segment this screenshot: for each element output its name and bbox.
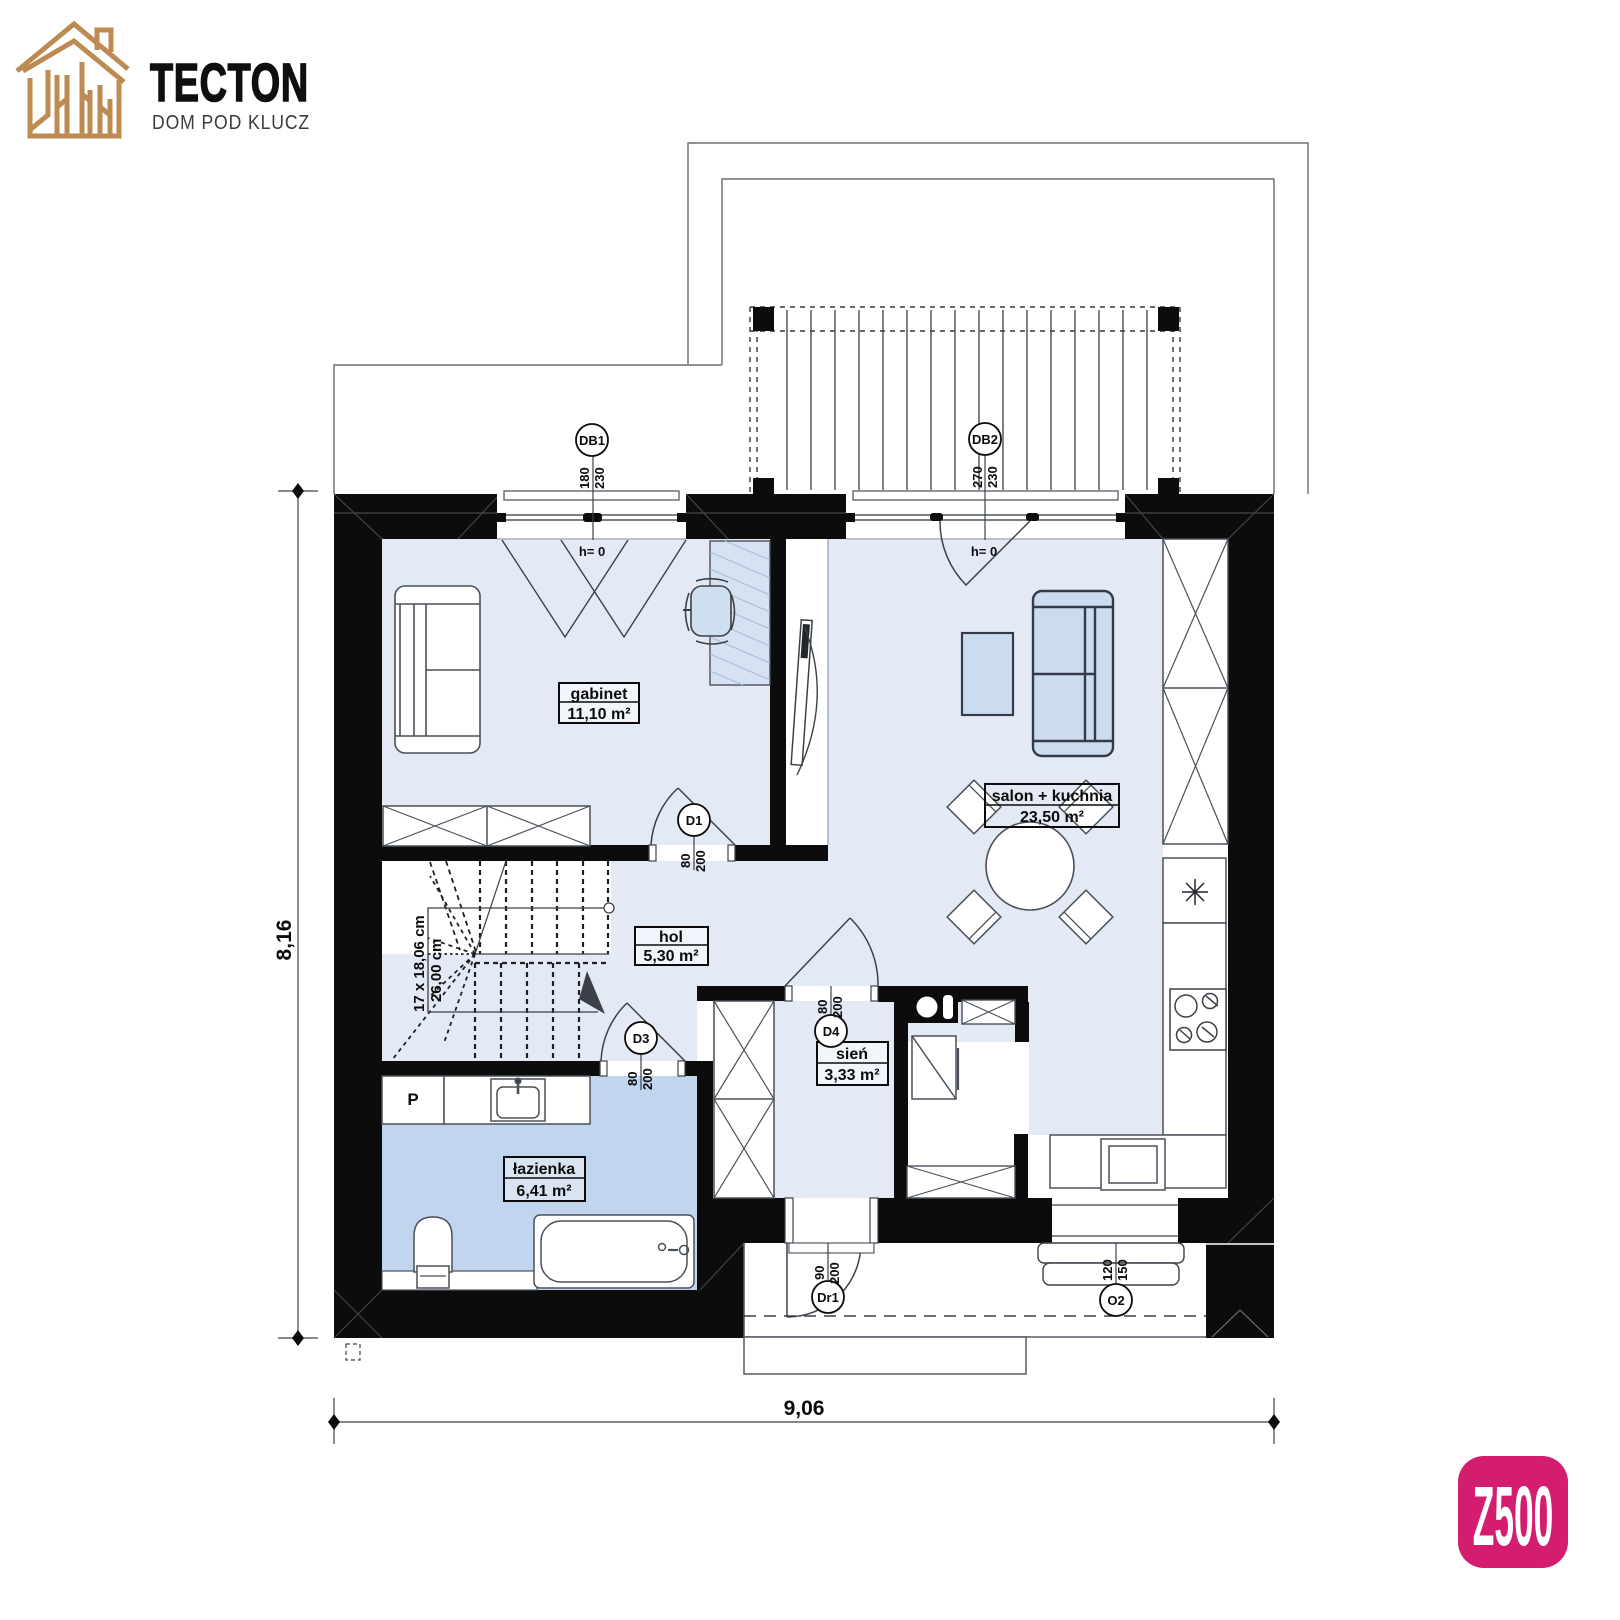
svg-text:DB1: DB1 bbox=[579, 433, 605, 448]
svg-text:Dr1: Dr1 bbox=[817, 1290, 839, 1305]
svg-text:11,10 m²: 11,10 m² bbox=[567, 706, 630, 723]
svg-text:O2: O2 bbox=[1107, 1293, 1124, 1308]
svg-text:D4: D4 bbox=[823, 1024, 840, 1039]
svg-text:90: 90 bbox=[812, 1266, 827, 1280]
svg-text:h= 0: h= 0 bbox=[971, 544, 997, 559]
svg-text:6,41 m²: 6,41 m² bbox=[516, 1183, 571, 1200]
svg-text:9,06: 9,06 bbox=[784, 1397, 825, 1420]
svg-text:salon + kuchnia: salon + kuchnia bbox=[992, 788, 1113, 805]
svg-text:80: 80 bbox=[678, 854, 693, 868]
svg-text:17 x 18,06 cm: 17 x 18,06 cm bbox=[411, 915, 428, 1012]
svg-text:180: 180 bbox=[577, 467, 592, 489]
svg-text:270: 270 bbox=[970, 466, 985, 488]
svg-text:gabinet: gabinet bbox=[571, 686, 629, 703]
svg-text:h= 0: h= 0 bbox=[579, 544, 605, 559]
svg-text:200: 200 bbox=[827, 1262, 842, 1284]
svg-text:200: 200 bbox=[640, 1068, 655, 1090]
svg-text:D3: D3 bbox=[633, 1031, 650, 1046]
svg-text:P: P bbox=[407, 1090, 418, 1109]
svg-text:23,50 m²: 23,50 m² bbox=[1020, 809, 1084, 826]
svg-text:sień: sień bbox=[836, 1046, 868, 1063]
svg-text:80: 80 bbox=[815, 1000, 830, 1014]
svg-text:hol: hol bbox=[659, 929, 683, 946]
svg-text:200: 200 bbox=[693, 850, 708, 872]
svg-text:120: 120 bbox=[1100, 1259, 1115, 1281]
svg-text:DB2: DB2 bbox=[972, 432, 998, 447]
svg-text:230: 230 bbox=[592, 467, 607, 489]
svg-text:150: 150 bbox=[1115, 1259, 1130, 1281]
svg-text:8,16: 8,16 bbox=[273, 920, 296, 961]
svg-text:230: 230 bbox=[985, 466, 1000, 488]
svg-text:Z500: Z500 bbox=[1473, 1469, 1553, 1563]
svg-text:26,00 cm: 26,00 cm bbox=[428, 939, 445, 1002]
svg-text:80: 80 bbox=[625, 1072, 640, 1086]
svg-text:200: 200 bbox=[830, 996, 845, 1018]
svg-text:DOM POD KLUCZ: DOM POD KLUCZ bbox=[152, 111, 310, 133]
svg-text:D1: D1 bbox=[686, 813, 703, 828]
svg-text:5,30 m²: 5,30 m² bbox=[643, 948, 698, 965]
svg-text:łazienka: łazienka bbox=[513, 1161, 575, 1178]
svg-text:TECTON: TECTON bbox=[150, 52, 309, 112]
svg-text:3,33 m²: 3,33 m² bbox=[824, 1067, 879, 1084]
